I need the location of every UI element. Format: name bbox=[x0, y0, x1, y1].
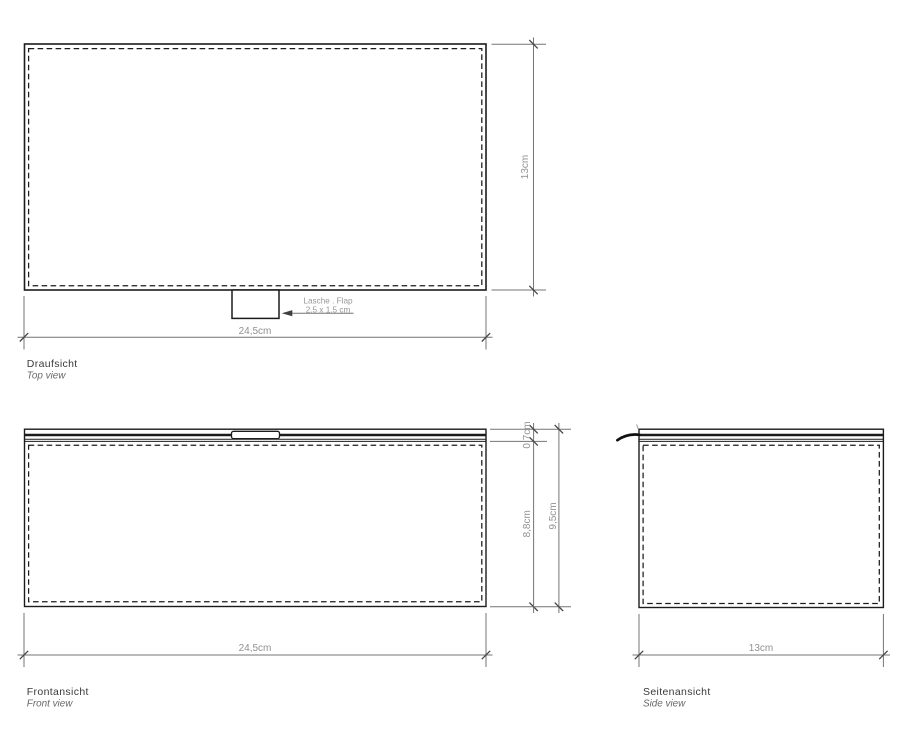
svg-text:Frontansicht: Frontansicht bbox=[27, 686, 89, 698]
svg-text:Front view: Front view bbox=[27, 699, 73, 710]
svg-text:Seitenansicht: Seitenansicht bbox=[643, 686, 711, 698]
svg-text:24,5cm: 24,5cm bbox=[239, 643, 272, 654]
svg-text:8,8cm: 8,8cm bbox=[522, 510, 533, 537]
svg-text:13cm: 13cm bbox=[520, 155, 531, 179]
svg-text:Draufsicht: Draufsicht bbox=[27, 358, 78, 370]
svg-text:9,5cm: 9,5cm bbox=[548, 502, 559, 529]
svg-text:24,5cm: 24,5cm bbox=[239, 326, 272, 337]
svg-text:Side view: Side view bbox=[643, 699, 686, 710]
svg-text:Lasche . Flap: Lasche . Flap bbox=[303, 296, 353, 305]
svg-text:13cm: 13cm bbox=[749, 643, 773, 654]
svg-text:Top view: Top view bbox=[27, 370, 66, 381]
svg-text:0,7cm: 0,7cm bbox=[522, 421, 533, 448]
svg-text:2,5 x 1,5 cm: 2,5 x 1,5 cm bbox=[306, 305, 351, 314]
